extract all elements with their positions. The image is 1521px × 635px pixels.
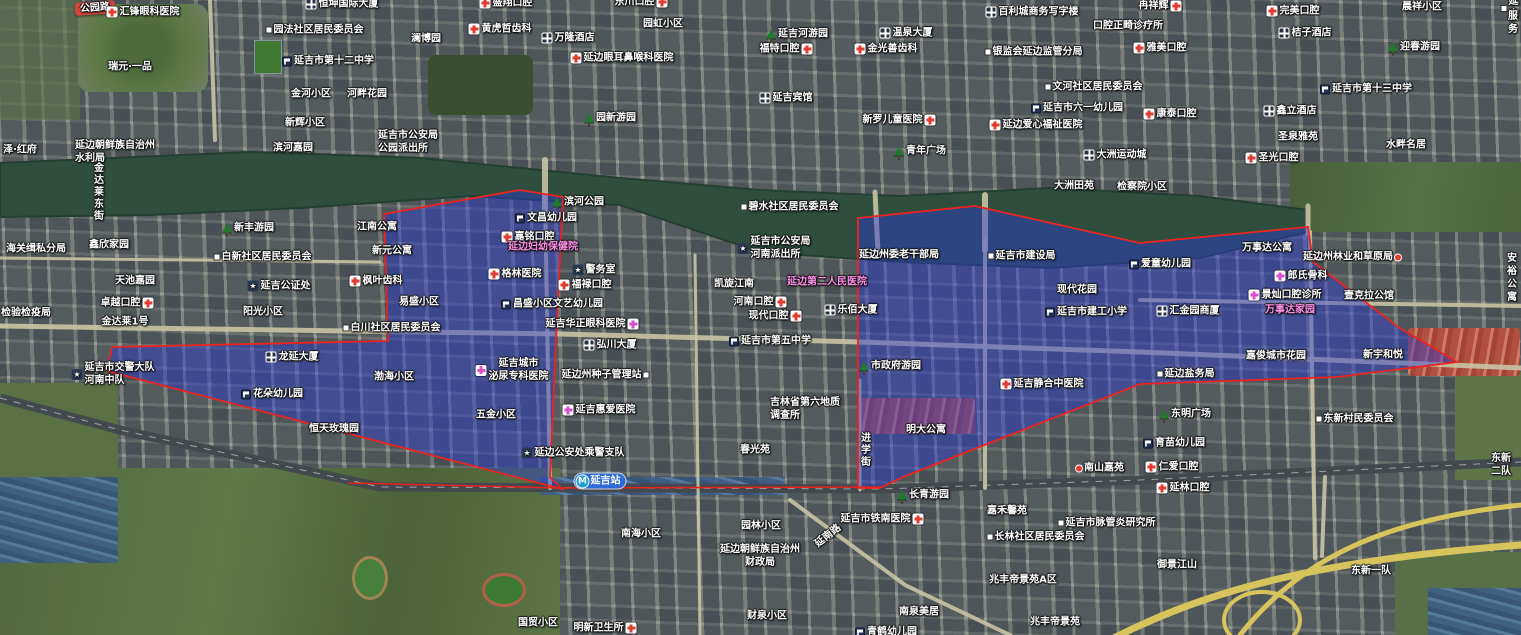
poi-label-text: 百利城商务写字楼	[999, 6, 1079, 19]
poi-label[interactable]: 东明广场	[1159, 408, 1211, 421]
poi-label[interactable]: 盛翔口腔	[480, 0, 533, 10]
poi-label[interactable]: 弘川大厦	[584, 339, 637, 352]
poi-dot-icon	[742, 205, 747, 210]
poi-label[interactable]: 晨祥小区	[1402, 1, 1442, 14]
poi-label-text: 延吉市铁南医院	[841, 513, 911, 526]
poi-label[interactable]: 东川口腔	[615, 0, 668, 9]
poi-label[interactable]: 卓越口腔	[101, 297, 154, 310]
poi-label-text: 延吉站	[591, 475, 621, 488]
railway-station-icon: M	[577, 475, 589, 487]
poi-label[interactable]: 检验检疫局	[1, 307, 51, 320]
poi-label[interactable]: 延吉河游园	[766, 28, 828, 41]
poi-label-text: 卓越口腔	[101, 297, 141, 310]
poi-label[interactable]: 完美口腔	[1267, 5, 1320, 18]
hospital-cross-icon	[480, 0, 491, 9]
poi-label[interactable]: ★延吉公证处	[248, 280, 311, 293]
poi-label[interactable]: 枫叶齿科	[350, 275, 403, 288]
government-star-icon: ★	[573, 265, 584, 276]
poi-label-text: 景灿口腔诊所	[1262, 289, 1322, 302]
poi-label-layer: 公园路汇锋眼科医院恒坤国际大厦盛翔口腔东川口腔园法社区居民委员会百利城商务写字楼…	[0, 0, 1521, 635]
poi-label[interactable]: 滨河公园	[552, 196, 604, 209]
poi-label-text: 延吉华正眼科医院	[546, 318, 626, 331]
poi-label[interactable]: 延吉城市 泌尿专科医院	[476, 357, 549, 383]
park-tree-icon	[897, 491, 907, 500]
poi-label[interactable]: 延吉静合中医院	[1001, 378, 1084, 391]
poi-label[interactable]: 嘉俊城市花园	[1246, 350, 1306, 363]
poi-label-text: 延吉市交警大队 河南中队	[85, 361, 155, 387]
poi-label[interactable]: 金河小区	[291, 88, 331, 101]
building-icon	[266, 352, 277, 363]
poi-label-text: 延吉市第五中学	[741, 335, 811, 348]
poi-label-text: 延吉公证处	[261, 280, 311, 293]
poi-label[interactable]: 新辉小区	[285, 117, 325, 130]
poi-label[interactable]: 安裕公寓	[1507, 252, 1517, 304]
poi-label[interactable]: 新宇和悦	[1363, 349, 1403, 362]
poi-label[interactable]: ★警务室	[573, 264, 616, 277]
poi-label-text: 现代口腔	[749, 310, 789, 323]
poi-label[interactable]: 万事达家园	[1265, 304, 1315, 317]
poi-label[interactable]: 延边州林业和草原局	[1303, 251, 1401, 264]
poi-label[interactable]: 温泉大厦	[880, 27, 933, 40]
poi-label[interactable]: 爱童幼儿园	[1129, 258, 1191, 271]
poi-label[interactable]: 银监会延边监管分局	[986, 46, 1083, 59]
poi-label[interactable]: 检察院小区	[1117, 181, 1167, 194]
poi-label[interactable]: 延吉市公安局 公园派出所	[378, 129, 438, 155]
poi-label-text: 延南路	[812, 522, 844, 551]
poi-label[interactable]: 恒坤国际大厦	[306, 0, 379, 11]
poi-label[interactable]: 五金小区	[476, 409, 516, 422]
building-icon	[760, 93, 771, 104]
poi-label[interactable]: 冉祥辉	[1139, 0, 1182, 13]
poi-label-text: 检验检疫局	[1, 307, 51, 320]
hospital-cross-icon	[626, 623, 637, 634]
poi-label[interactable]: 延吉惠爱医院	[563, 404, 636, 417]
park-tree-icon	[766, 30, 776, 39]
poi-label[interactable]: 碧水社区居民委员会	[742, 201, 839, 214]
poi-label[interactable]: 明新卫生所	[574, 622, 637, 635]
school-icon	[515, 213, 525, 223]
poi-label-text: 延吉城市 泌尿专科医院	[489, 357, 549, 383]
poi-label-text: 万隆酒店	[555, 32, 595, 45]
poi-label-text: 康泰口腔	[1157, 108, 1197, 121]
poi-dot-icon	[1317, 417, 1322, 422]
poi-label[interactable]: 现代花园	[1057, 284, 1097, 297]
clinic-cross-icon	[563, 405, 574, 416]
poi-label-text: 延边公安处乘警支队	[535, 447, 625, 460]
poi-label-text: 龙延大厦	[279, 351, 319, 364]
poi-label-text: 吉林省第六地质 调查所	[770, 396, 840, 422]
hospital-cross-icon	[1001, 379, 1012, 390]
park-tree-icon	[552, 198, 562, 207]
satellite-map[interactable]: 公园路汇锋眼科医院恒坤国际大厦盛翔口腔东川口腔园法社区居民委员会百利城商务写字楼…	[0, 0, 1521, 635]
clinic-cross-icon	[628, 319, 639, 330]
poi-label[interactable]: 汇金园商厦	[1157, 305, 1220, 318]
poi-label[interactable]: 滨河嘉园	[273, 142, 313, 155]
poi-label-text: 园法社区居民委员会	[274, 24, 364, 37]
poi-label[interactable]: 金光善齿科	[855, 43, 918, 56]
poi-label-text: 郎氏骨科	[1288, 270, 1328, 283]
poi-label[interactable]: 园新游园	[584, 112, 636, 125]
poi-label-text: 进学街	[858, 432, 871, 468]
poi-label[interactable]: 延边爱心福祉医院	[990, 119, 1083, 132]
poi-label[interactable]: 吉林省第六地质 调查所	[770, 396, 840, 422]
clinic-cross-icon	[1275, 271, 1286, 282]
government-star-icon: ★	[248, 281, 259, 292]
poi-label[interactable]: 延吉市第十二中学	[282, 55, 374, 68]
poi-label-text: 新罗儿童医院	[863, 114, 923, 127]
poi-label[interactable]: ★延边公安处乘警支队	[522, 447, 625, 460]
poi-label-text: 御景江山	[1157, 559, 1197, 572]
hospital-cross-icon	[925, 115, 936, 126]
poi-label[interactable]: 兆丰帝景苑A区	[989, 574, 1057, 587]
poi-label[interactable]: 园虹小区	[643, 18, 683, 31]
poi-dot-icon	[1502, 6, 1507, 11]
poi-label[interactable]: 进学街	[858, 432, 871, 468]
poi-label[interactable]: 水畔名居	[1386, 139, 1426, 152]
poi-label[interactable]: 财泉小区	[747, 610, 787, 623]
poi-label-text: 服务	[1508, 10, 1518, 36]
poi-label-text: 桔子酒店	[1292, 27, 1332, 40]
poi-label[interactable]: 澜博园	[411, 33, 441, 46]
poi-label[interactable]: 百利城商务写字楼	[986, 6, 1079, 19]
poi-label[interactable]: 新元公寓	[372, 245, 412, 258]
poi-label[interactable]: 鑫欣家园	[89, 239, 129, 252]
poi-label-text: 花朵幼儿园	[253, 388, 303, 401]
poi-label[interactable]: 海关缉私分局	[6, 243, 66, 256]
poi-label-text: 延吉市公安局 公园派出所	[378, 129, 438, 155]
poi-label[interactable]: ★延吉市交警大队 河南中队	[72, 361, 155, 387]
poi-label[interactable]: 市政府游园	[859, 360, 921, 373]
poi-label-text: 水畔名居	[1386, 139, 1426, 152]
poi-label-text: 青年广场	[906, 145, 946, 158]
poi-label[interactable]: 园林小区	[741, 520, 781, 533]
poi-label-text: 滨河嘉园	[273, 142, 313, 155]
poi-label[interactable]: 园法社区居民委员会	[267, 24, 364, 37]
poi-label[interactable]: 育苗幼儿园	[1143, 437, 1205, 450]
poi-label-text: 延边州种子管理站	[562, 369, 642, 382]
poi-label[interactable]: 延吉市六一幼儿园	[1031, 102, 1123, 115]
poi-label[interactable]: 长林社区居民委员会	[988, 531, 1085, 544]
building-icon	[306, 0, 317, 10]
hospital-cross-icon	[1246, 153, 1257, 164]
poi-label[interactable]: 南海小区	[621, 528, 661, 541]
poi-label[interactable]: 长青游园	[897, 489, 949, 502]
government-star-icon: ★	[72, 369, 83, 380]
poi-label[interactable]: 延边朝鲜族自治州 财政局	[720, 543, 800, 569]
poi-label-text: 银监会延边监管分局	[993, 46, 1083, 59]
poi-label-text: 鑫欣家园	[89, 239, 129, 252]
poi-label[interactable]: 凯旋江南	[714, 278, 754, 291]
poi-label[interactable]: 壹克拉公馆	[1344, 290, 1394, 303]
poi-label-text: 天池嘉园	[115, 275, 155, 288]
hospital-cross-icon	[1267, 6, 1278, 17]
building-icon	[1279, 28, 1290, 39]
park-tree-icon	[584, 114, 594, 123]
poi-label-text: 江南公寓	[357, 221, 397, 234]
poi-label-text: 延吉河游园	[778, 28, 828, 41]
poi-label-text: 白新社区居民委员会	[222, 251, 312, 264]
school-icon	[855, 627, 865, 635]
park-tree-icon	[1159, 410, 1169, 419]
poi-label[interactable]: 口腔正畸诊疗所	[1093, 20, 1163, 33]
poi-label-text: 园新游园	[596, 112, 636, 125]
poi-label[interactable]: 格林医院	[489, 268, 542, 281]
poi-label[interactable]: 春光苑	[740, 444, 770, 457]
poi-label-text: 兆丰帝景苑A区	[989, 574, 1057, 587]
poi-label-text: 延吉静合中医院	[1014, 378, 1084, 391]
building-icon	[825, 305, 836, 316]
poi-label[interactable]: 桔子酒店	[1279, 27, 1332, 40]
poi-label[interactable]: 嘉禾馨苑	[987, 505, 1027, 518]
poi-label[interactable]: 河南口腔	[734, 296, 787, 309]
poi-label-text: 长青游园	[909, 489, 949, 502]
poi-label[interactable]: 金达莱东街	[91, 162, 104, 222]
poi-label-text: 嘉俊城市花园	[1246, 350, 1306, 363]
poi-label-text: 温泉大厦	[893, 27, 933, 40]
poi-label-text: 明大公寓	[906, 424, 946, 437]
poi-label-text: 延吉市建工小学	[1057, 306, 1127, 319]
poi-label[interactable]: 延吉市第十三中学	[1320, 83, 1412, 96]
hospital-cross-icon	[990, 120, 1001, 131]
poi-label[interactable]: 河畔花园	[347, 88, 387, 101]
poi-label-text: 圣泉雅苑	[1278, 131, 1318, 144]
poi-label-text: 福禄口腔	[572, 279, 612, 292]
poi-dot-icon	[344, 326, 349, 331]
poi-label[interactable]: 圣泉雅苑	[1278, 131, 1318, 144]
poi-label-text: 鑫立酒店	[1277, 105, 1317, 118]
poi-label[interactable]: 渤海小区	[374, 371, 414, 384]
poi-label[interactable]: 鑫立酒店	[1264, 105, 1317, 118]
poi-label-text: 东明广场	[1171, 408, 1211, 421]
poi-label-text: 五金小区	[476, 409, 516, 422]
hospital-cross-icon	[469, 24, 480, 35]
hospital-cross-icon	[559, 280, 570, 291]
poi-label-text: 延吉市第十二中学	[294, 55, 374, 68]
poi-label-text: 新宇和悦	[1363, 349, 1403, 362]
poi-label[interactable]: 延吉市脉管炎研究所	[1059, 517, 1156, 530]
poi-label[interactable]: 景灿口腔诊所	[1249, 289, 1322, 302]
poi-label-text: 延吉市脉管炎研究所	[1066, 517, 1156, 530]
poi-dot-icon	[267, 28, 272, 33]
poi-label[interactable]: 易盛小区	[399, 296, 439, 309]
poi-dot-icon	[986, 50, 991, 55]
poi-label-text: 南山嘉苑	[1084, 462, 1124, 475]
school-icon	[1031, 103, 1041, 113]
poi-label-text: 万事达公寓	[1242, 242, 1292, 255]
hospital-cross-icon	[913, 514, 924, 525]
poi-label[interactable]: 东新二队	[1491, 452, 1511, 478]
school-icon	[1129, 259, 1139, 269]
poi-label-text: 雅美口腔	[1147, 42, 1187, 55]
poi-label-text: 延边爱心福祉医院	[1003, 119, 1083, 132]
poi-label[interactable]: 白新社区居民委员会	[215, 251, 312, 264]
poi-label-text: 瑞元·一品	[108, 61, 152, 74]
poi-label[interactable]: 万隆酒店	[542, 32, 595, 45]
poi-label-text: 昌盛小区文艺幼儿园	[513, 298, 603, 311]
poi-label-text: 延吉市建设局	[996, 250, 1056, 263]
poi-label-text: 金达莱1号	[102, 316, 149, 329]
poi-label[interactable]: 延吉市建设局	[989, 250, 1056, 263]
poi-red-dot-icon	[1395, 254, 1401, 260]
hospital-cross-icon	[802, 44, 813, 55]
poi-label-text: 仁爱口腔	[1159, 461, 1199, 474]
poi-label-text: 文河社区居民委员会	[1053, 81, 1143, 94]
poi-label-text: 阳光小区	[243, 306, 283, 319]
poi-label[interactable]: 御景江山	[1157, 559, 1197, 572]
poi-label-text: 新元公寓	[372, 245, 412, 258]
poi-label-text: 大洲运动城	[1097, 149, 1147, 162]
poi-label[interactable]: 东新一队	[1351, 565, 1391, 578]
poi-label[interactable]: 阳光小区	[243, 306, 283, 319]
poi-label-text: 明新卫生所	[574, 622, 624, 635]
hospital-cross-icon	[571, 53, 582, 64]
poi-label-text: 延边眼耳鼻喉科医院	[584, 52, 674, 65]
poi-dot-icon	[644, 373, 649, 378]
poi-label-text: 延边盐务局	[1165, 368, 1215, 381]
poi-label[interactable]: 福特口腔	[760, 43, 813, 56]
poi-label-text: 延吉市第十三中学	[1332, 83, 1412, 96]
poi-label[interactable]: 青鹤幼儿园	[855, 626, 917, 635]
poi-label-text: 弘川大厦	[597, 339, 637, 352]
poi-label-text: 兆丰帝景苑	[1030, 616, 1080, 629]
poi-label-text: 河畔花园	[347, 88, 387, 101]
poi-label[interactable]: 东新村民委员会	[1317, 413, 1394, 426]
poi-label[interactable]: 花朵幼儿园	[241, 388, 303, 401]
poi-label[interactable]: 郎氏骨科	[1275, 270, 1328, 283]
poi-label-text: 渤海小区	[374, 371, 414, 384]
hospital-cross-icon	[1157, 483, 1168, 494]
poi-label[interactable]: 昌盛小区文艺幼儿园	[501, 298, 603, 311]
government-star-icon: ★	[738, 243, 749, 254]
school-icon	[282, 56, 292, 66]
poi-label-text: 南泉美居	[899, 606, 939, 619]
poi-dot-icon	[1046, 85, 1051, 90]
poi-label[interactable]: 迎春游园	[1388, 41, 1440, 54]
poi-label[interactable]: 瑞元·一品	[108, 61, 152, 74]
poi-label[interactable]: M延吉站	[575, 474, 626, 489]
poi-label[interactable]: 延吉市建工小学	[1045, 306, 1127, 319]
poi-label-text: 泽·红府	[3, 144, 37, 157]
poi-label[interactable]: 青年广场	[894, 145, 946, 158]
poi-label[interactable]: 延边第二人民医院	[787, 276, 867, 289]
government-star-icon: ★	[522, 448, 533, 459]
poi-label[interactable]: 延吉宾馆	[760, 92, 813, 105]
poi-label[interactable]: 大洲运动城	[1084, 149, 1147, 162]
poi-label-text: 澜博园	[411, 33, 441, 46]
poi-label[interactable]: 延吉华正眼科医院	[546, 318, 639, 331]
poi-label[interactable]: 康泰口腔	[1144, 108, 1197, 121]
poi-label-text: 碧水社区居民委员会	[749, 201, 839, 214]
poi-label[interactable]: 万事达公寓	[1242, 242, 1292, 255]
park-tree-icon	[222, 224, 232, 233]
hospital-cross-icon	[1134, 43, 1145, 54]
poi-label-text: 圣光口腔	[1259, 152, 1299, 165]
poi-label[interactable]: 乐佰大厦	[825, 304, 878, 317]
poi-label[interactable]: 新丰游园	[222, 222, 274, 235]
poi-label[interactable]: 延边州委老干部局	[859, 249, 939, 262]
poi-label[interactable]: 圣光口腔	[1246, 152, 1299, 165]
building-icon	[584, 340, 595, 351]
poi-label-text: 滨河公园	[564, 196, 604, 209]
poi-label-text: 爱童幼儿园	[1141, 258, 1191, 271]
hospital-cross-icon	[855, 44, 866, 55]
poi-label[interactable]: 福禄口腔	[559, 279, 612, 292]
park-tree-icon	[1388, 43, 1398, 52]
poi-label-text: 文昌幼儿园	[527, 212, 577, 225]
poi-label-text: 园林小区	[741, 520, 781, 533]
poi-label[interactable]: 延边妇幼保健院	[508, 241, 578, 254]
poi-label[interactable]: 南泉美居	[899, 606, 939, 619]
poi-label-text: 延吉惠爱医院	[576, 404, 636, 417]
poi-label[interactable]: 现代口腔	[749, 310, 802, 323]
poi-label[interactable]: 大洲田苑	[1054, 180, 1094, 193]
poi-label[interactable]: 泽·红府	[3, 144, 37, 157]
poi-label[interactable]: 白川社区居民委员会	[344, 322, 441, 335]
poi-label[interactable]: 江南公寓	[357, 221, 397, 234]
poi-label[interactable]: 南山嘉苑	[1076, 462, 1124, 475]
school-icon	[241, 389, 251, 399]
hospital-cross-icon	[776, 297, 787, 308]
poi-label-text: 延吉市六一幼儿园	[1043, 102, 1123, 115]
poi-label-text: 延吉市公安局 河南派出所	[751, 235, 811, 261]
poi-label-text: 恒天玫瑰园	[309, 423, 359, 436]
poi-label[interactable]: 延林口腔	[1157, 482, 1210, 495]
poi-label[interactable]: 雅美口腔	[1134, 42, 1187, 55]
poi-label[interactable]: 国贸小区	[518, 617, 558, 630]
poi-label-text: 东新一队	[1351, 565, 1391, 578]
poi-label[interactable]: 延边朝鲜族自治州 水利局	[75, 139, 155, 165]
poi-label[interactable]: 文昌幼儿园	[515, 212, 577, 225]
poi-label[interactable]: 天池嘉园	[115, 275, 155, 288]
poi-label[interactable]: 延吉市铁南医院	[841, 513, 924, 526]
poi-label-text: 市政府游园	[871, 360, 921, 373]
poi-label[interactable]: 龙延大厦	[266, 351, 319, 364]
poi-label[interactable]: 延南路	[812, 522, 844, 551]
poi-label-text: 福特口腔	[760, 43, 800, 56]
poi-red-dot-icon	[1076, 465, 1082, 471]
poi-label-text: 格林医院	[502, 268, 542, 281]
poi-label[interactable]: 文河社区居民委员会	[1046, 81, 1143, 94]
poi-label-text: 晨祥小区	[1402, 1, 1442, 14]
poi-label-text: 南海小区	[621, 528, 661, 541]
poi-label-text: 金光善齿科	[868, 43, 918, 56]
poi-label-text: 现代花园	[1057, 284, 1097, 297]
poi-label[interactable]: ★延吉市公安局 河南派出所	[738, 235, 811, 261]
poi-label[interactable]: 汇锋眼科医院	[107, 6, 180, 19]
school-icon	[501, 299, 511, 309]
poi-label[interactable]: 恒天玫瑰园	[309, 423, 359, 436]
poi-label[interactable]: 黄虎哲齿科	[469, 23, 532, 36]
poi-label-text: 东川口腔	[615, 0, 655, 9]
poi-label[interactable]: 兆丰帝景苑	[1030, 616, 1080, 629]
poi-label[interactable]: 新罗儿童医院	[863, 114, 936, 127]
poi-label[interactable]: 延吉市第五中学	[729, 335, 811, 348]
poi-label-text: 育苗幼儿园	[1155, 437, 1205, 450]
poi-label[interactable]: 明大公寓	[906, 424, 946, 437]
poi-label-text: 冉祥辉	[1139, 0, 1169, 13]
poi-label[interactable]: 延边眼耳鼻喉科医院	[571, 52, 674, 65]
hospital-cross-icon	[657, 0, 668, 8]
poi-label-text: 青鹤幼儿园	[867, 626, 917, 635]
poi-label[interactable]: 服务	[1508, 10, 1518, 36]
building-icon	[986, 7, 997, 18]
poi-label-text: 园虹小区	[643, 18, 683, 31]
poi-label[interactable]: 延边盐务局	[1158, 368, 1215, 381]
poi-label[interactable]: 金达莱1号	[102, 316, 149, 329]
poi-label-text: 东新村民委员会	[1324, 413, 1394, 426]
poi-label[interactable]: 延边州种子管理站	[562, 369, 649, 382]
poi-label[interactable]: 仁爱口腔	[1146, 461, 1199, 474]
